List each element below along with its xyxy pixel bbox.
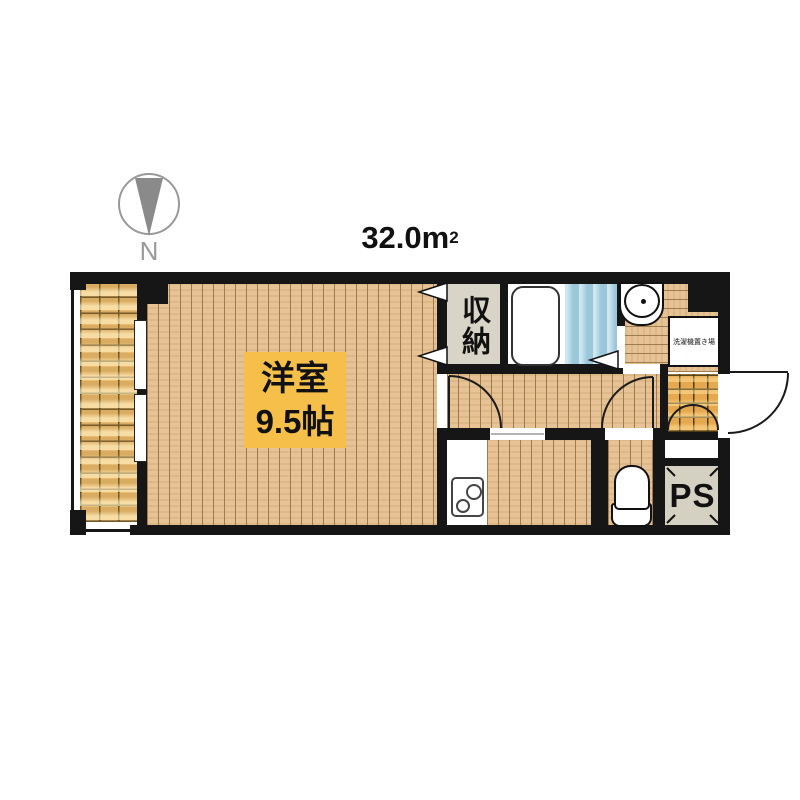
- hallway-floor: [447, 374, 660, 430]
- wall-genkan-bottom: [660, 432, 722, 440]
- compass-label: N: [134, 236, 164, 266]
- balcony-outer-line: [71, 272, 74, 532]
- wall-ps-top: [653, 458, 730, 466]
- area-label: 32.0m2: [340, 218, 480, 258]
- wall-room-right-top: [437, 282, 447, 374]
- floorplan-canvas: { "floorplan": { "area": { "value": "32.…: [0, 0, 800, 800]
- washing-machine-space: 洗濯機置き場: [668, 316, 720, 367]
- wall-room-corner-step: [147, 282, 168, 304]
- washbasin-drain-dot: [641, 299, 646, 304]
- kitchen-floor: [487, 440, 591, 525]
- balcony-corner-top: [70, 272, 86, 290]
- wall-genkan-left: [660, 364, 668, 432]
- bathtub: [511, 286, 560, 366]
- toilet-bowl: [614, 465, 650, 510]
- wall-kitchen-right: [591, 428, 608, 535]
- balcony-corner-bottom: [70, 510, 86, 535]
- balcony-window-upper: [134, 320, 147, 390]
- bathroom-floor: [565, 282, 617, 372]
- closet-label: 収納: [447, 284, 500, 368]
- main-room-size: 9.5帖: [256, 401, 335, 442]
- entrance-door-swing-arc: [728, 373, 788, 433]
- balcony-tiles: [80, 282, 137, 522]
- main-room-name: 洋室: [261, 358, 329, 401]
- doorway-bath: [617, 326, 625, 368]
- main-room-label: 洋室 9.5帖: [244, 352, 346, 448]
- doorway-room-hallway: [437, 374, 447, 428]
- wall-toilet-right: [653, 432, 665, 535]
- compass-needle-icon: [135, 178, 163, 236]
- pipe-space-label: PS: [665, 466, 720, 525]
- wall-room-right-bottom: [437, 428, 447, 535]
- washing-machine-label: 洗濯機置き場: [673, 337, 715, 347]
- doorway-kitchen: [490, 428, 545, 440]
- doorway-entrance: [718, 374, 730, 438]
- doorway-washroom: [623, 364, 660, 374]
- compass: [119, 174, 179, 236]
- doorway-toilet: [605, 428, 653, 440]
- service-gap: [665, 440, 718, 458]
- stove-burner-small: [456, 499, 470, 513]
- area-superscript: 2: [449, 228, 458, 248]
- entrance-tiles: [665, 374, 720, 432]
- balcony-window-lower: [134, 394, 147, 462]
- wall-closet-right: [500, 282, 508, 372]
- area-value: 32.0m: [361, 220, 449, 256]
- compass-circle: [119, 174, 179, 234]
- stove-burner-large: [466, 484, 482, 500]
